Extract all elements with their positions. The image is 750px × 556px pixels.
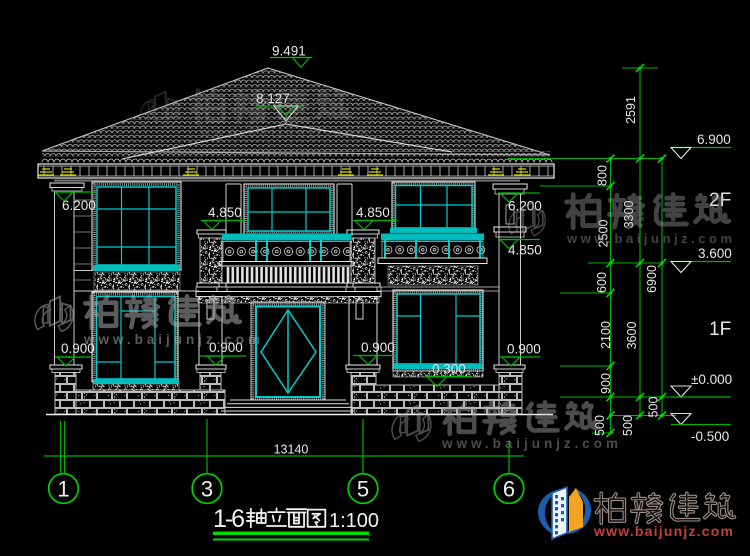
svg-text:1:100: 1:100 [329, 510, 379, 532]
svg-text:2591: 2591 [624, 96, 638, 124]
svg-text:±0.000: ±0.000 [691, 372, 732, 387]
svg-text:0.900: 0.900 [507, 342, 541, 357]
svg-text:3: 3 [201, 477, 213, 502]
svg-text:13140: 13140 [274, 443, 309, 457]
svg-text:6: 6 [503, 477, 515, 502]
svg-text:3600: 3600 [625, 322, 639, 350]
svg-text:0.900: 0.900 [361, 340, 395, 355]
svg-text:6.900: 6.900 [697, 132, 731, 147]
svg-text:0.300: 0.300 [432, 362, 466, 377]
svg-text:6.200: 6.200 [62, 198, 96, 213]
svg-text:2100: 2100 [599, 321, 613, 349]
svg-text:1-6: 1-6 [213, 505, 245, 533]
svg-text:www.baijunjz.com: www.baijunjz.com [593, 523, 733, 539]
svg-text:500: 500 [646, 397, 660, 418]
svg-text:-0.500: -0.500 [691, 429, 729, 444]
svg-text:800: 800 [595, 165, 609, 186]
svg-text:4.850: 4.850 [356, 205, 390, 220]
svg-text:6900: 6900 [645, 265, 659, 293]
svg-text:900: 900 [599, 373, 613, 394]
svg-text:600: 600 [595, 272, 609, 293]
svg-text:5: 5 [357, 477, 369, 502]
svg-text:3.600: 3.600 [698, 246, 732, 261]
svg-text:1: 1 [57, 477, 69, 502]
svg-text:9.491: 9.491 [272, 44, 306, 59]
svg-text:500: 500 [621, 415, 635, 436]
svg-text:4.850: 4.850 [208, 205, 242, 220]
svg-text:1F: 1F [709, 319, 731, 340]
